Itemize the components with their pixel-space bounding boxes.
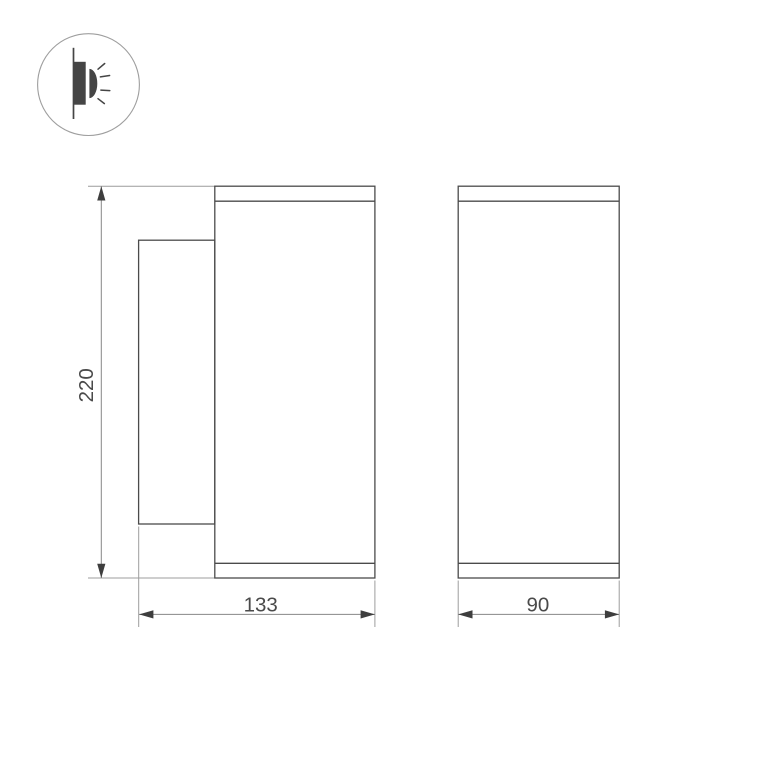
svg-text:133: 133 (244, 594, 278, 617)
svg-text:90: 90 (526, 594, 549, 617)
svg-text:220: 220 (75, 368, 98, 402)
